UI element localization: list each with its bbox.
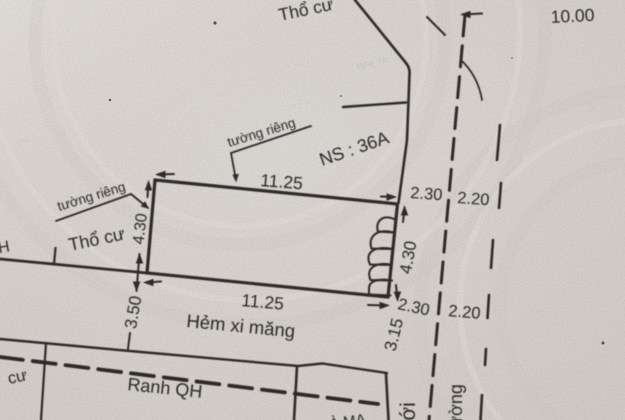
- svg-text:11.25: 11.25: [241, 290, 285, 314]
- svg-text:2.20: 2.20: [457, 189, 490, 209]
- svg-text:2.20: 2.20: [448, 302, 482, 323]
- svg-text:10.00: 10.00: [550, 5, 595, 27]
- svg-text:đường: đường: [446, 384, 466, 420]
- svg-text:giới: giới: [397, 402, 420, 420]
- svg-text:11.25: 11.25: [260, 170, 304, 193]
- svg-text:2.30: 2.30: [410, 184, 443, 204]
